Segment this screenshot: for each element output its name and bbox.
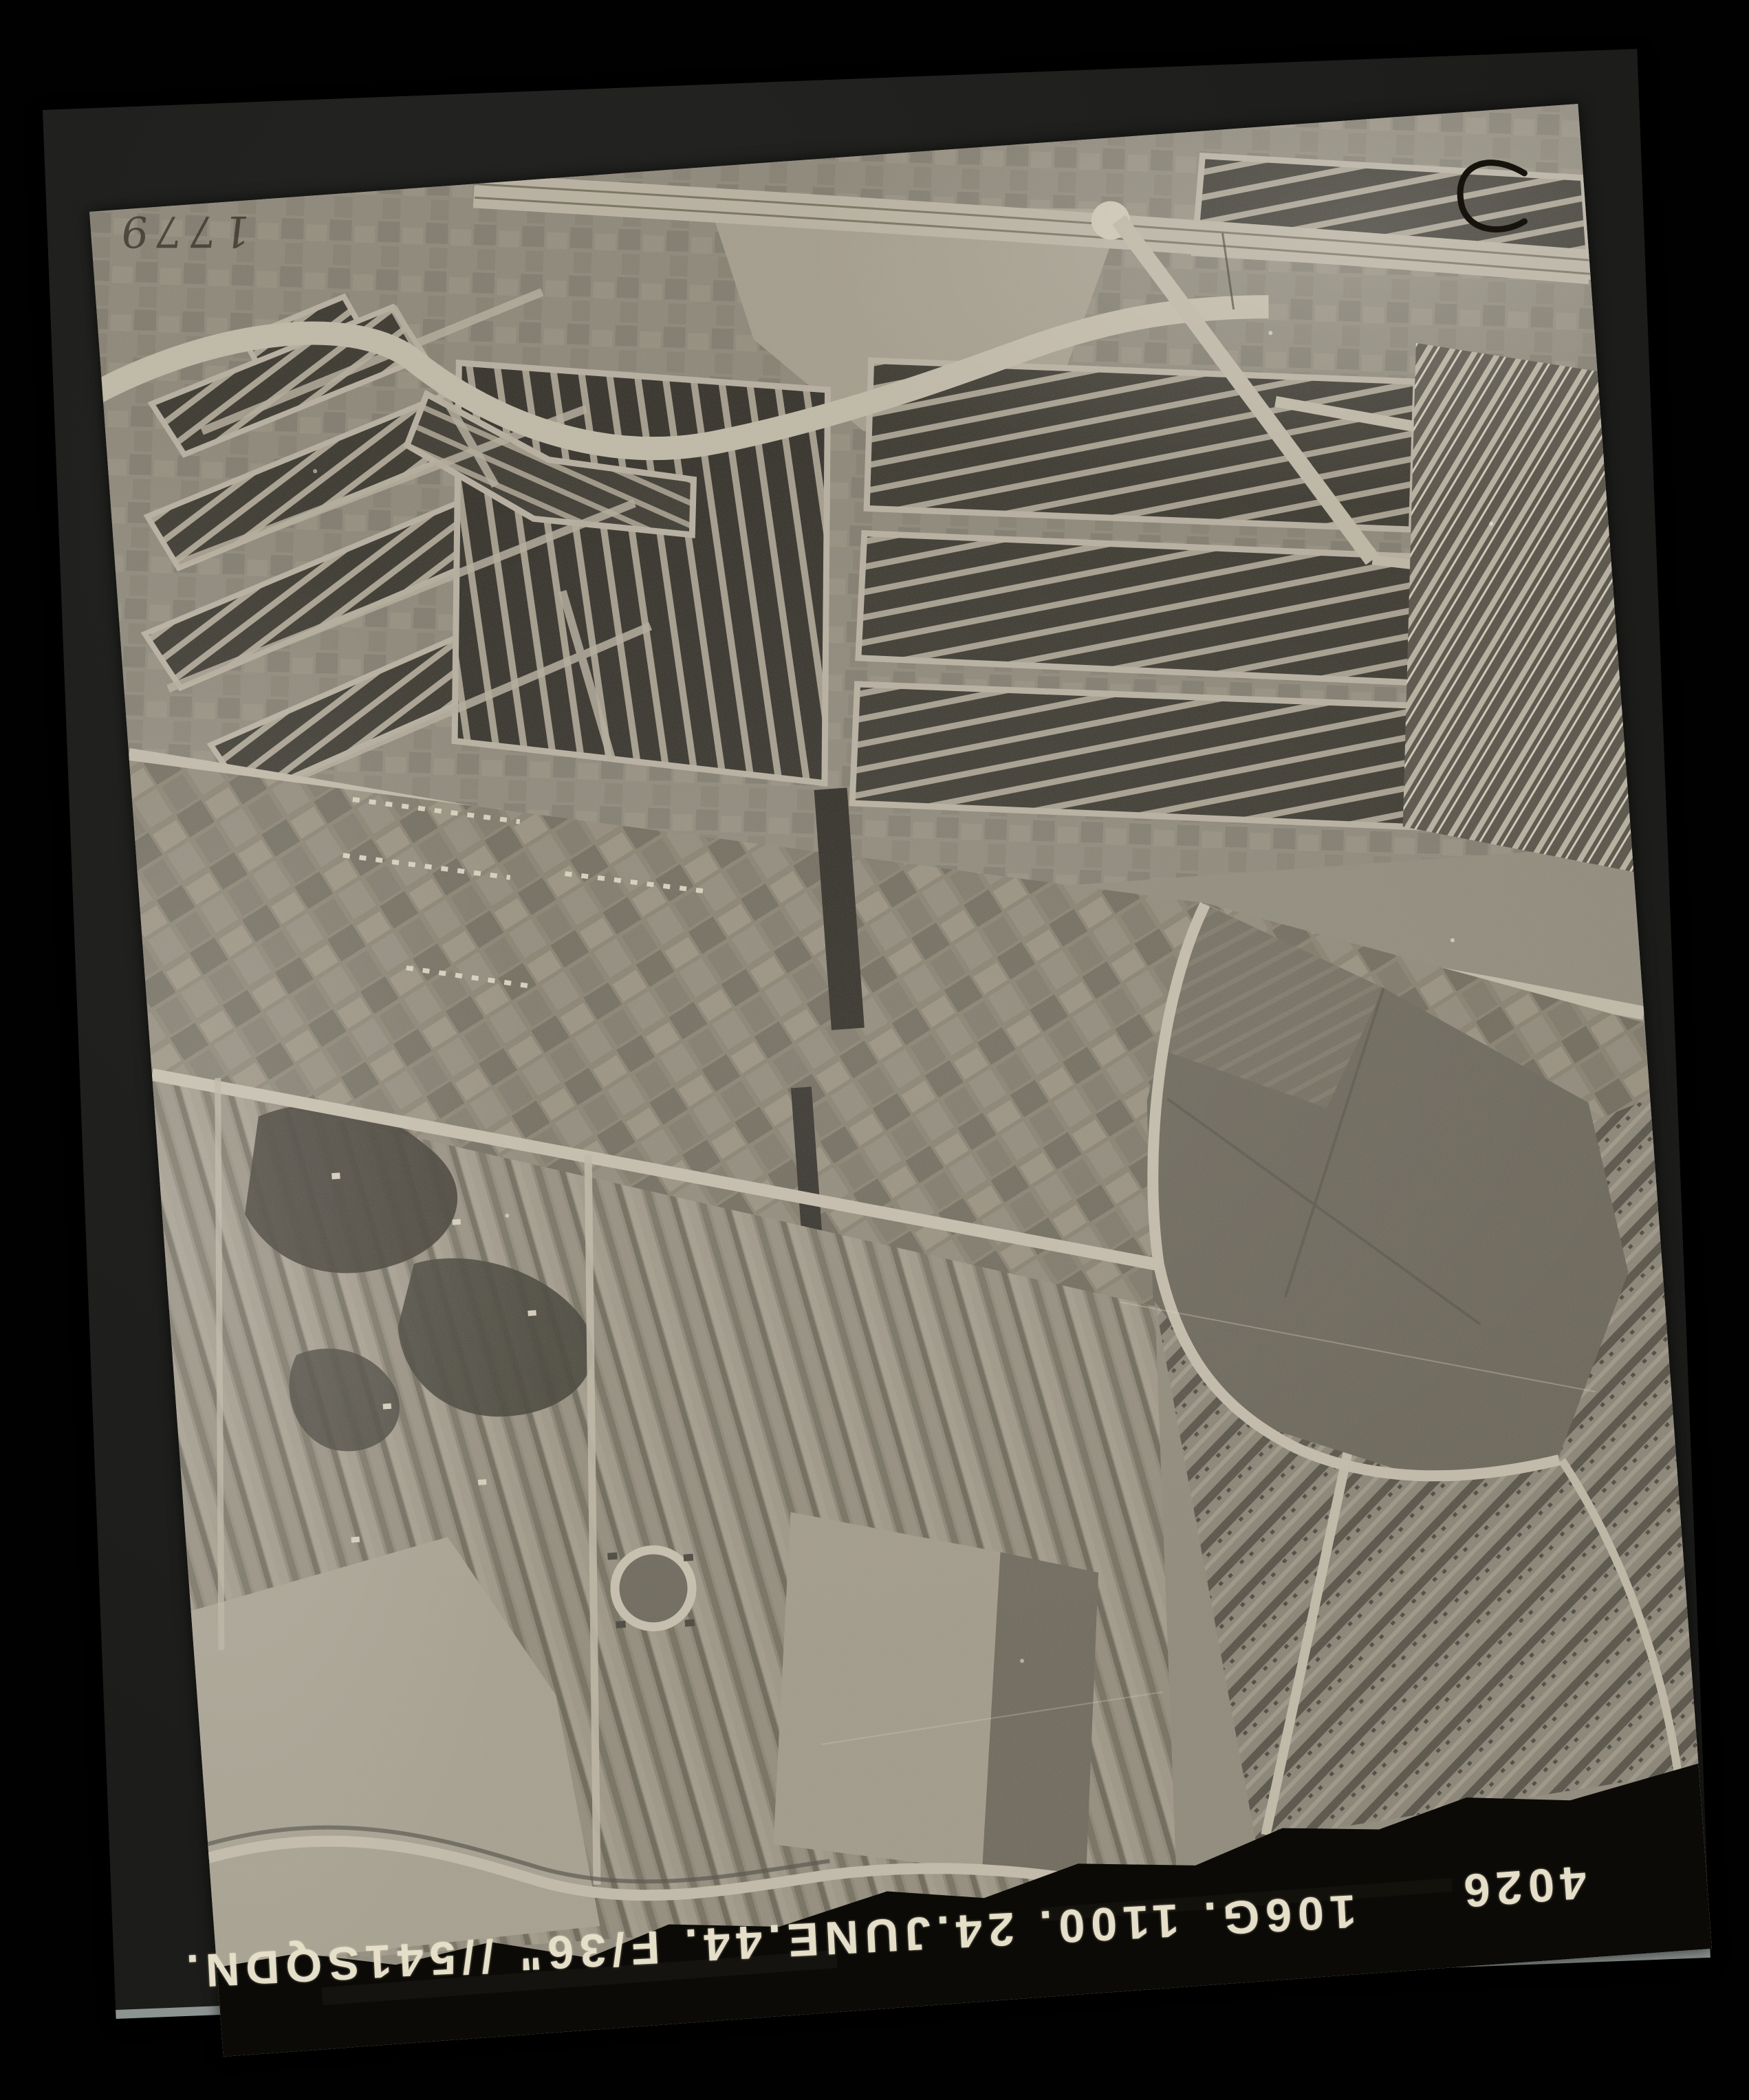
scanned-aerial-photo-sheet: 1779 4026 106G. 1100. 24.JUNE.44. F/36" …: [0, 0, 1749, 2100]
aerial-imagery: [89, 104, 1712, 2057]
caption-frame-number: 4026: [1456, 1855, 1588, 1918]
aerial-photo-print: 1779 4026 106G. 1100. 24.JUNE.44. F/36" …: [89, 104, 1712, 2057]
handwritten-frame-number: 1779: [111, 206, 254, 257]
film-grain: [89, 104, 1712, 2057]
